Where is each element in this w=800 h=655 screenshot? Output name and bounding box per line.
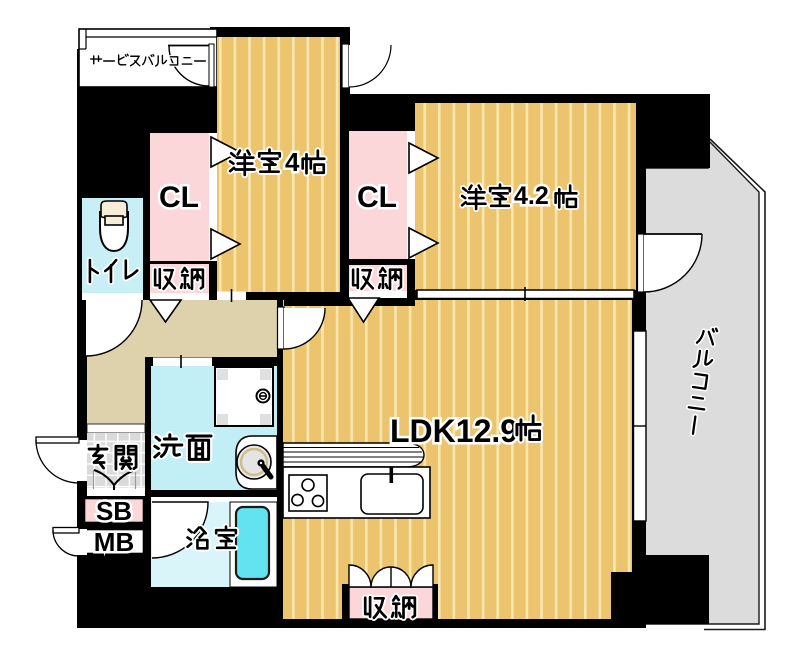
svg-text:LDK12.9: LDK12.9 (390, 413, 518, 449)
svg-text:MB: MB (94, 527, 134, 557)
svg-text:CL: CL (357, 181, 397, 214)
svg-text:4: 4 (285, 147, 300, 177)
svg-text:SB: SB (96, 496, 132, 526)
svg-text:CL: CL (159, 181, 199, 214)
svg-text:4.2: 4.2 (514, 182, 549, 210)
